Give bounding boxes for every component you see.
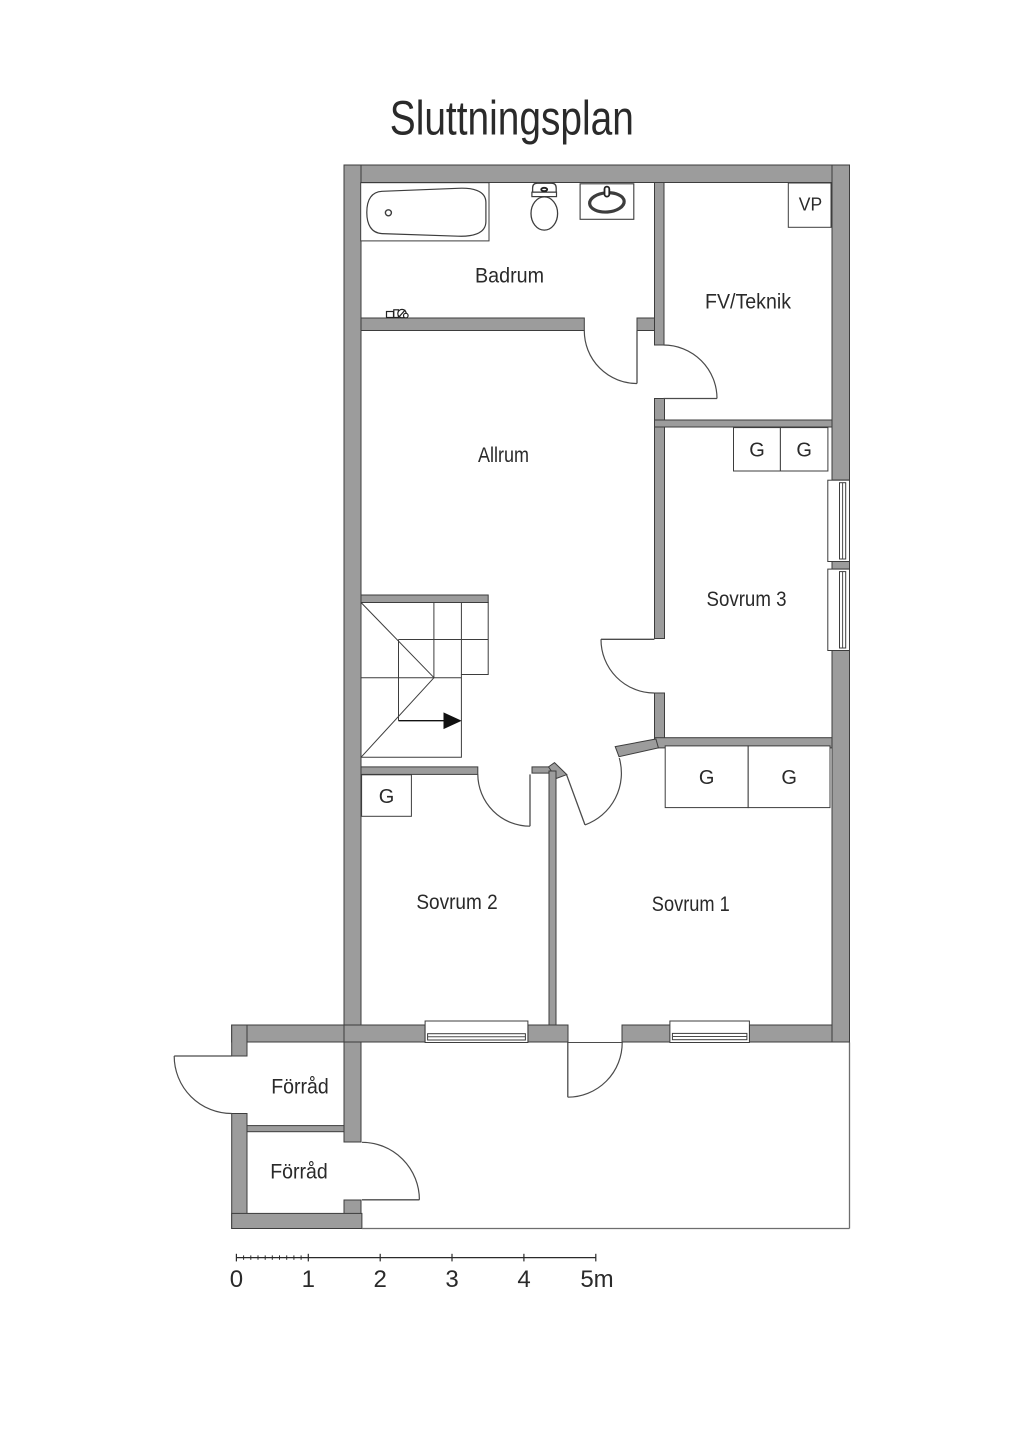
svg-text:Badrum: Badrum — [475, 265, 544, 288]
svg-text:G: G — [749, 440, 765, 462]
svg-text:G: G — [699, 767, 715, 789]
svg-text:FV/Teknik: FV/Teknik — [705, 291, 791, 314]
svg-text:4: 4 — [517, 1266, 530, 1293]
svg-text:G: G — [379, 786, 395, 808]
svg-text:G: G — [796, 440, 812, 462]
svg-text:1: 1 — [302, 1266, 315, 1293]
svg-text:Sovrum 1: Sovrum 1 — [652, 893, 730, 916]
svg-text:Förråd: Förråd — [271, 1076, 329, 1099]
svg-text:0: 0 — [230, 1266, 243, 1293]
svg-text:VP: VP — [799, 194, 822, 214]
svg-text:3: 3 — [445, 1266, 458, 1293]
svg-text:5m: 5m — [580, 1266, 613, 1293]
svg-text:Förråd: Förråd — [270, 1161, 328, 1184]
svg-text:2: 2 — [374, 1266, 387, 1293]
svg-text:Sluttningsplan: Sluttningsplan — [390, 93, 634, 146]
svg-text:Sovrum 3: Sovrum 3 — [707, 588, 787, 611]
svg-text:Sovrum 2: Sovrum 2 — [416, 891, 497, 914]
svg-text:G: G — [781, 767, 797, 789]
svg-text:Allrum: Allrum — [478, 444, 529, 467]
